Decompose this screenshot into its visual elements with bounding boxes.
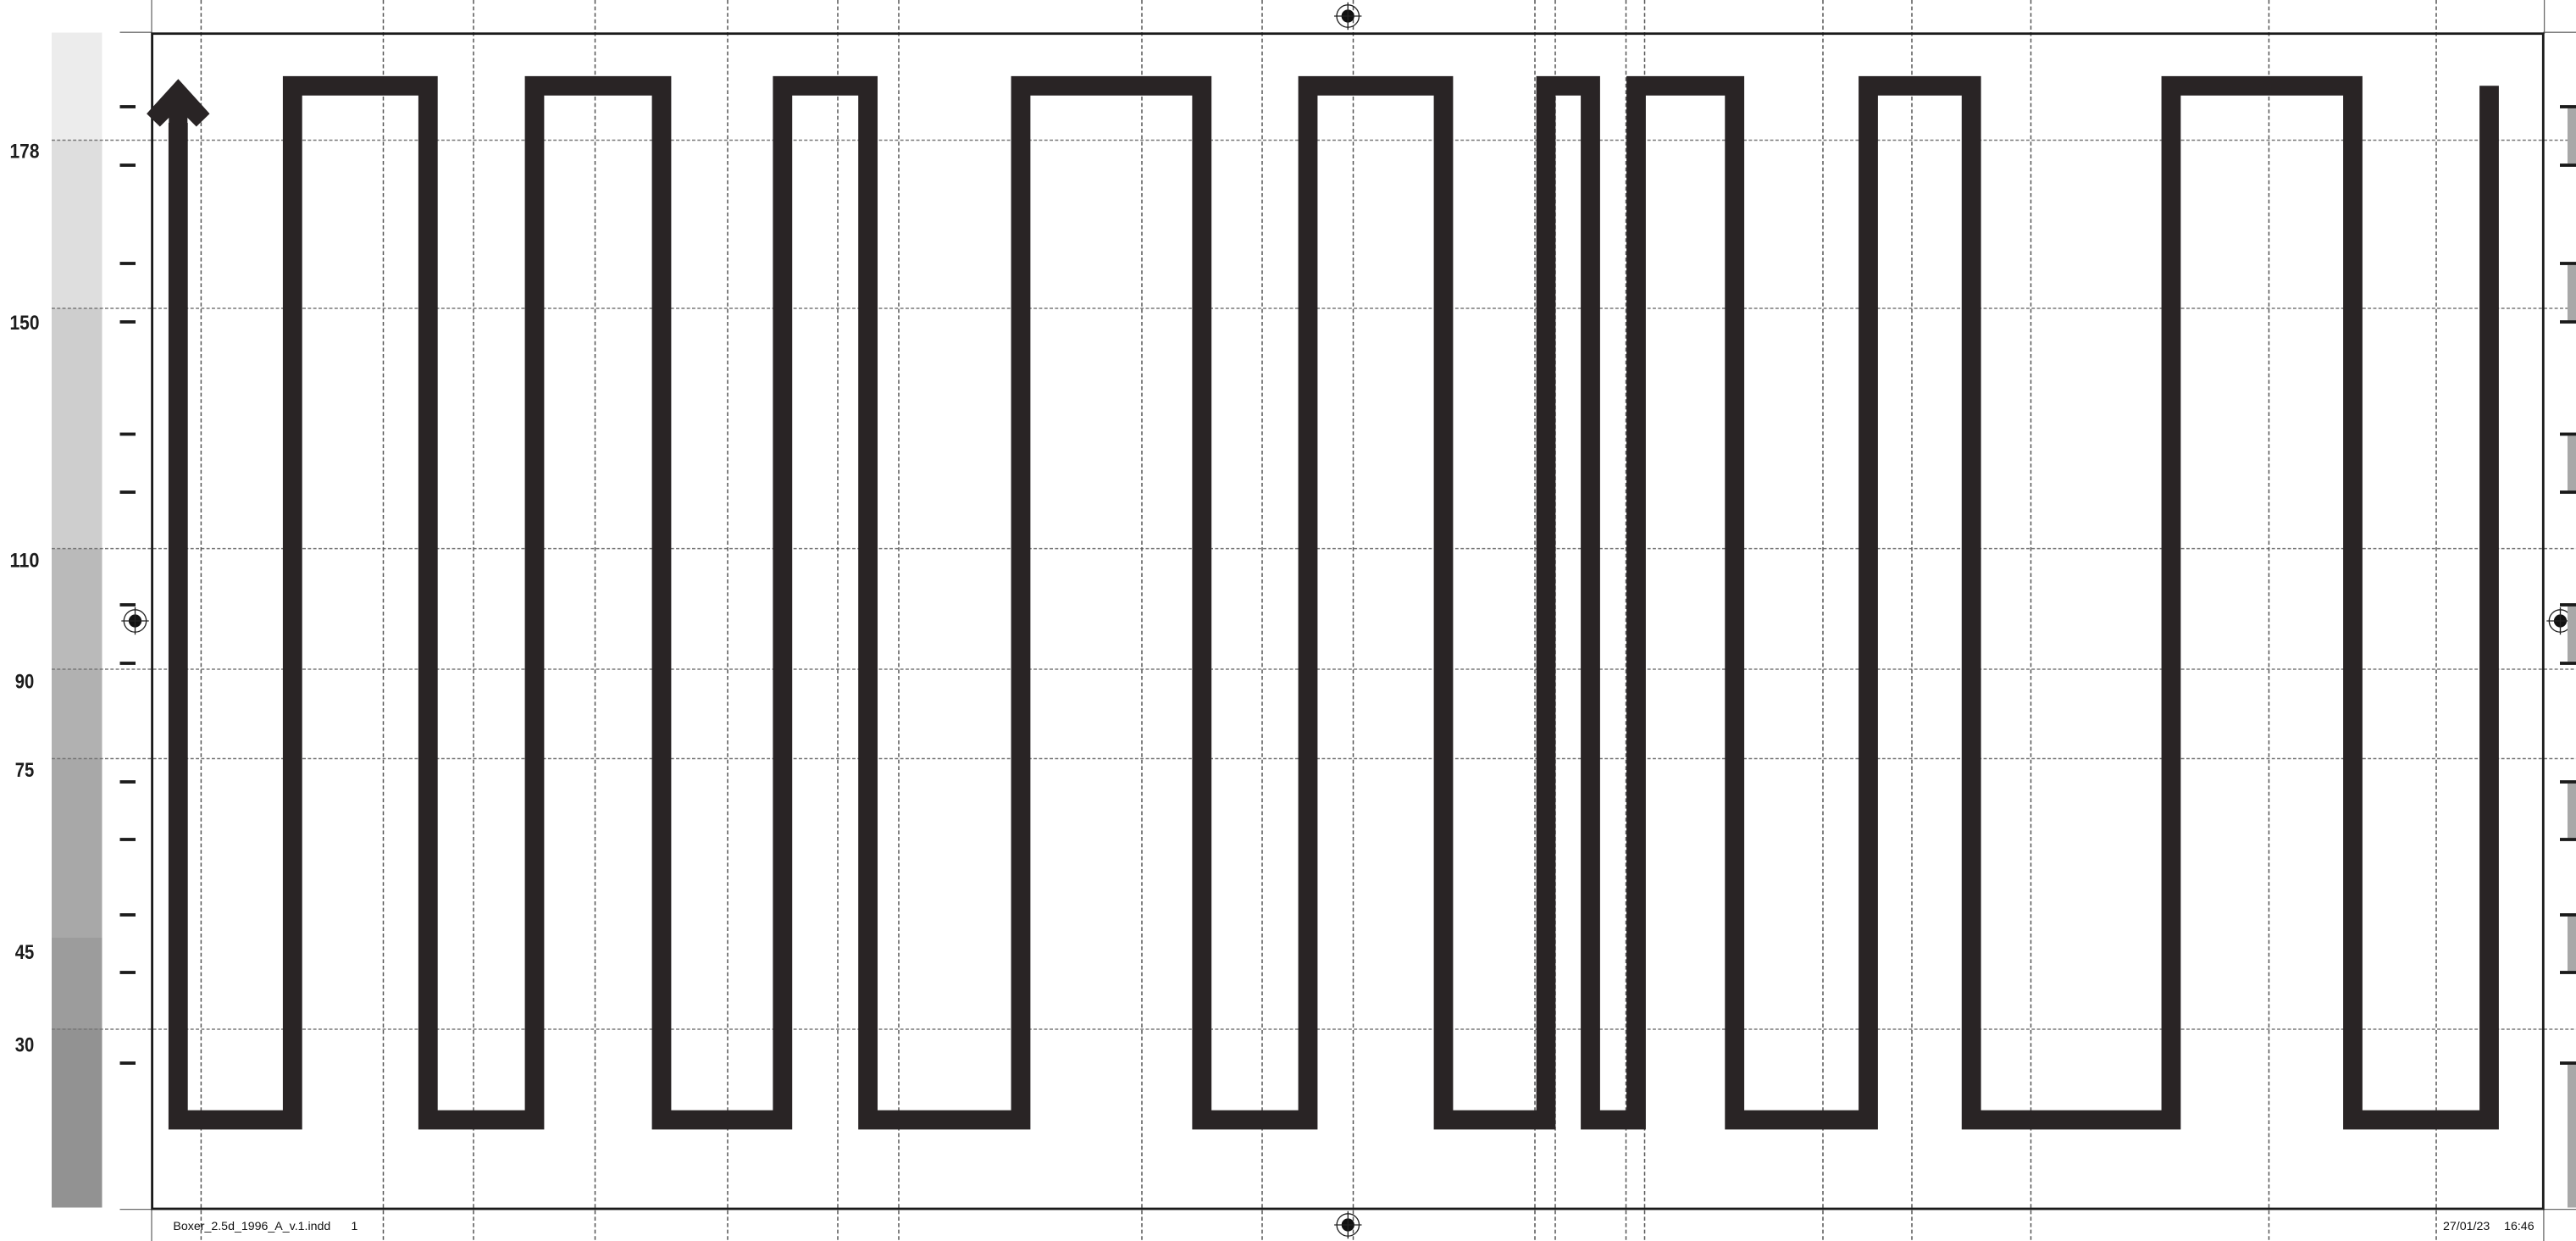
svg-text:27/01/23: 27/01/23 xyxy=(2443,1220,2490,1233)
svg-text:75: 75 xyxy=(15,759,35,782)
svg-text:90: 90 xyxy=(15,671,35,694)
svg-text:45: 45 xyxy=(15,941,35,964)
svg-text:150: 150 xyxy=(10,312,40,335)
svg-text:30: 30 xyxy=(15,1034,35,1057)
svg-text:1: 1 xyxy=(352,1220,358,1233)
svg-text:Boxer_2.5d_1996_A_v.1.indd: Boxer_2.5d_1996_A_v.1.indd xyxy=(173,1220,330,1233)
svg-text:178: 178 xyxy=(10,141,40,163)
svg-text:110: 110 xyxy=(10,550,40,573)
svg-text:16:46: 16:46 xyxy=(2504,1220,2534,1233)
